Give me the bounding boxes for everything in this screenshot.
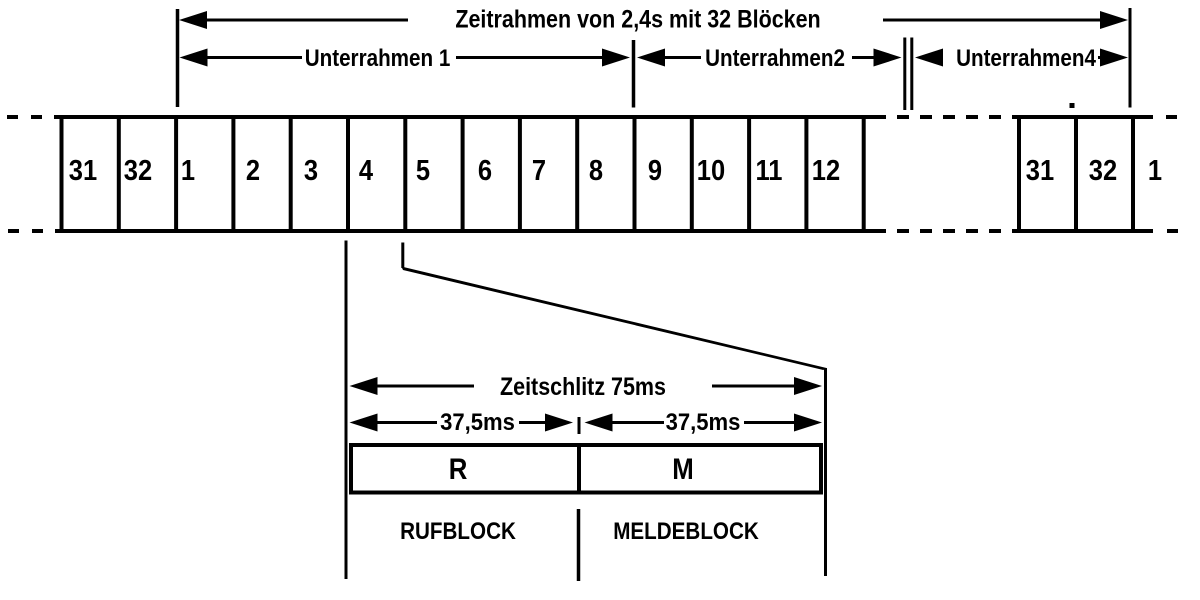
svg-text:MELDEBLOCK: MELDEBLOCK xyxy=(613,518,759,545)
svg-text:Zeitschlitz 75ms: Zeitschlitz 75ms xyxy=(500,372,666,400)
svg-text:5: 5 xyxy=(416,153,430,186)
svg-text:37,5ms: 37,5ms xyxy=(440,408,515,435)
svg-text:31: 31 xyxy=(1026,153,1054,186)
svg-text:32: 32 xyxy=(1089,153,1117,186)
svg-text:7: 7 xyxy=(532,153,546,186)
svg-text:1: 1 xyxy=(181,153,195,186)
svg-text:Unterrahmen2: Unterrahmen2 xyxy=(705,45,845,72)
svg-text:10: 10 xyxy=(697,153,725,186)
svg-text:31: 31 xyxy=(69,153,97,186)
svg-text:8: 8 xyxy=(589,153,603,186)
svg-text:9: 9 xyxy=(648,153,662,186)
svg-text:RUFBLOCK: RUFBLOCK xyxy=(400,518,516,545)
svg-text:Unterrahmen 1: Unterrahmen 1 xyxy=(305,45,451,72)
svg-text:2: 2 xyxy=(246,153,260,186)
svg-text:37,5ms: 37,5ms xyxy=(666,408,741,435)
svg-text:R: R xyxy=(449,452,468,485)
svg-text:1: 1 xyxy=(1148,153,1162,186)
svg-text:Zeitrahmen von 2,4s mit 32 Blö: Zeitrahmen von 2,4s mit 32 Blöcken xyxy=(455,5,820,33)
svg-text:4: 4 xyxy=(359,153,374,186)
svg-text:12: 12 xyxy=(812,153,840,186)
svg-text:3: 3 xyxy=(304,153,318,186)
svg-text:6: 6 xyxy=(478,153,492,186)
svg-text:11: 11 xyxy=(756,153,783,186)
svg-text:32: 32 xyxy=(124,153,152,186)
svg-text:M: M xyxy=(672,452,693,485)
svg-text:Unterrahmen4: Unterrahmen4 xyxy=(956,45,1096,72)
